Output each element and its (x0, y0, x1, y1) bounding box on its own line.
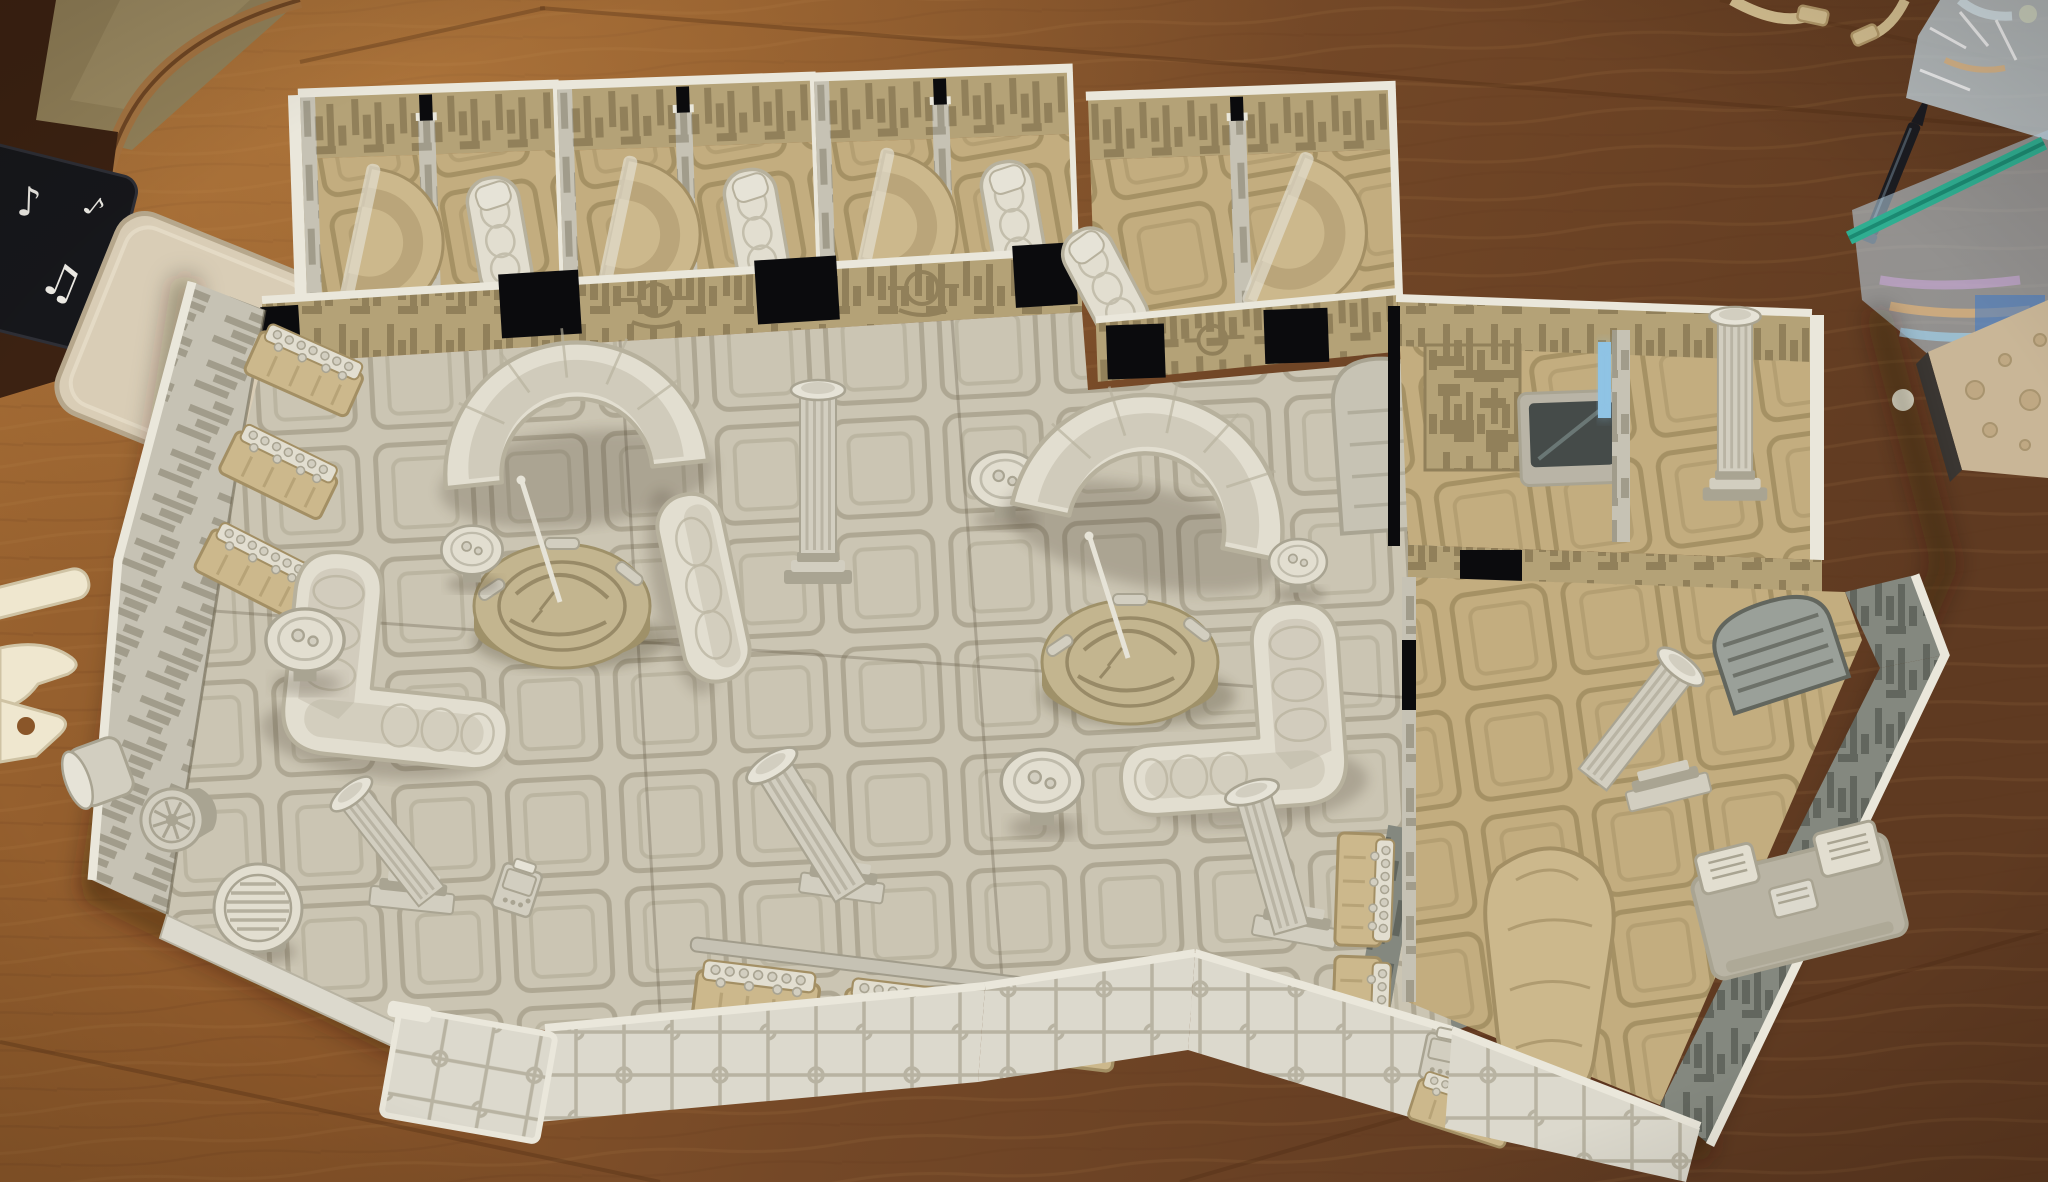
photo-canvas: ♪ ♫ ♩ ♫ ♪ (0, 0, 2048, 1182)
photo-stage: ♪ ♫ ♩ ♫ ♪ (0, 0, 2048, 1182)
photo-vignette (0, 0, 2048, 1182)
